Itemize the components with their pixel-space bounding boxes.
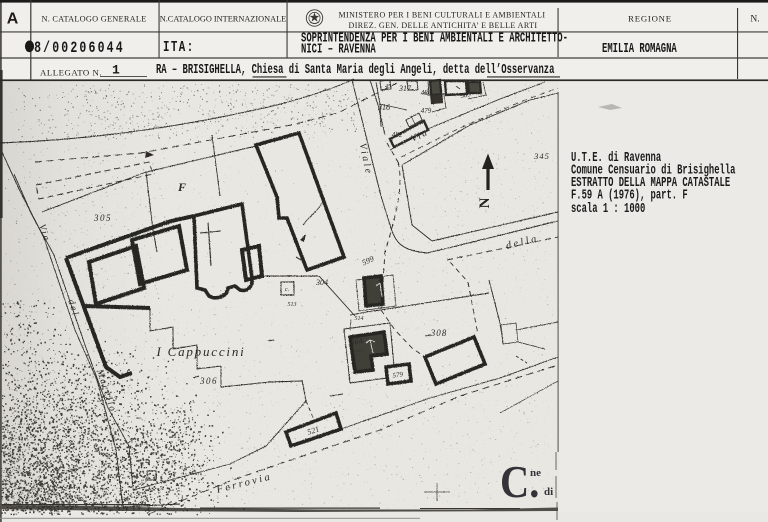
svg-text:513: 513 [288, 302, 297, 308]
svg-text:REGIONE: REGIONE [628, 14, 672, 24]
svg-text:317: 317 [398, 84, 412, 93]
svg-text:ITA:: ITA: [163, 38, 195, 55]
svg-text:1: 1 [112, 63, 120, 78]
svg-text:514: 514 [355, 315, 364, 322]
svg-text:I Cappuccini: I Cappuccini [155, 344, 245, 359]
svg-text:DIREZ. GEN. DELLE ANTICHITA’ E: DIREZ. GEN. DELLE ANTICHITA’ E BELLE ART… [349, 21, 538, 30]
svg-text:486: 486 [421, 89, 432, 97]
svg-text:N.CATALOGO INTERNAZIONALE: N.CATALOGO INTERNAZIONALE [160, 15, 287, 24]
svg-text:305: 305 [93, 213, 112, 223]
svg-text:316: 316 [377, 103, 390, 112]
svg-text:304: 304 [315, 278, 328, 287]
svg-text:482: 482 [392, 131, 403, 139]
svg-text:ALLEGATO N.: ALLEGATO N. [40, 68, 102, 78]
svg-text:579: 579 [392, 370, 404, 379]
svg-text:345: 345 [533, 151, 550, 161]
svg-text:scala 1 : 1000: scala 1 : 1000 [571, 203, 645, 217]
svg-text:MINISTERO PER I BENI CULTURALI: MINISTERO PER I BENI CULTURALI E AMBIENT… [339, 11, 546, 20]
svg-text:479: 479 [421, 107, 432, 115]
svg-text:N. CATALOGO GENERALE: N. CATALOGO GENERALE [41, 15, 146, 24]
svg-text:NICI – RAVENNA: NICI – RAVENNA [301, 42, 376, 57]
svg-text:306: 306 [199, 376, 218, 386]
svg-text:N.: N. [750, 15, 759, 25]
svg-text:08/00206044: 08/00206044 [25, 39, 125, 57]
svg-text:di: di [544, 486, 553, 498]
svg-text:c.: c. [285, 287, 289, 293]
svg-text:F: F [177, 180, 186, 194]
svg-text:308: 308 [430, 328, 448, 338]
svg-text:ne: ne [530, 467, 541, 479]
svg-text:N: N [477, 197, 493, 208]
svg-text:45: 45 [385, 83, 391, 90]
svg-text:EMILIA ROMAGNA: EMILIA ROMAGNA [602, 41, 677, 56]
svg-text:F.59 A (1976), part. F: F.59 A (1976), part. F [571, 189, 688, 203]
svg-text:A: A [7, 11, 19, 28]
svg-text:C.: C. [500, 457, 539, 508]
svg-text:RA – BRISIGHELLA, Chiesa di Sa: RA – BRISIGHELLA, Chiesa di Santa Maria … [156, 61, 554, 78]
